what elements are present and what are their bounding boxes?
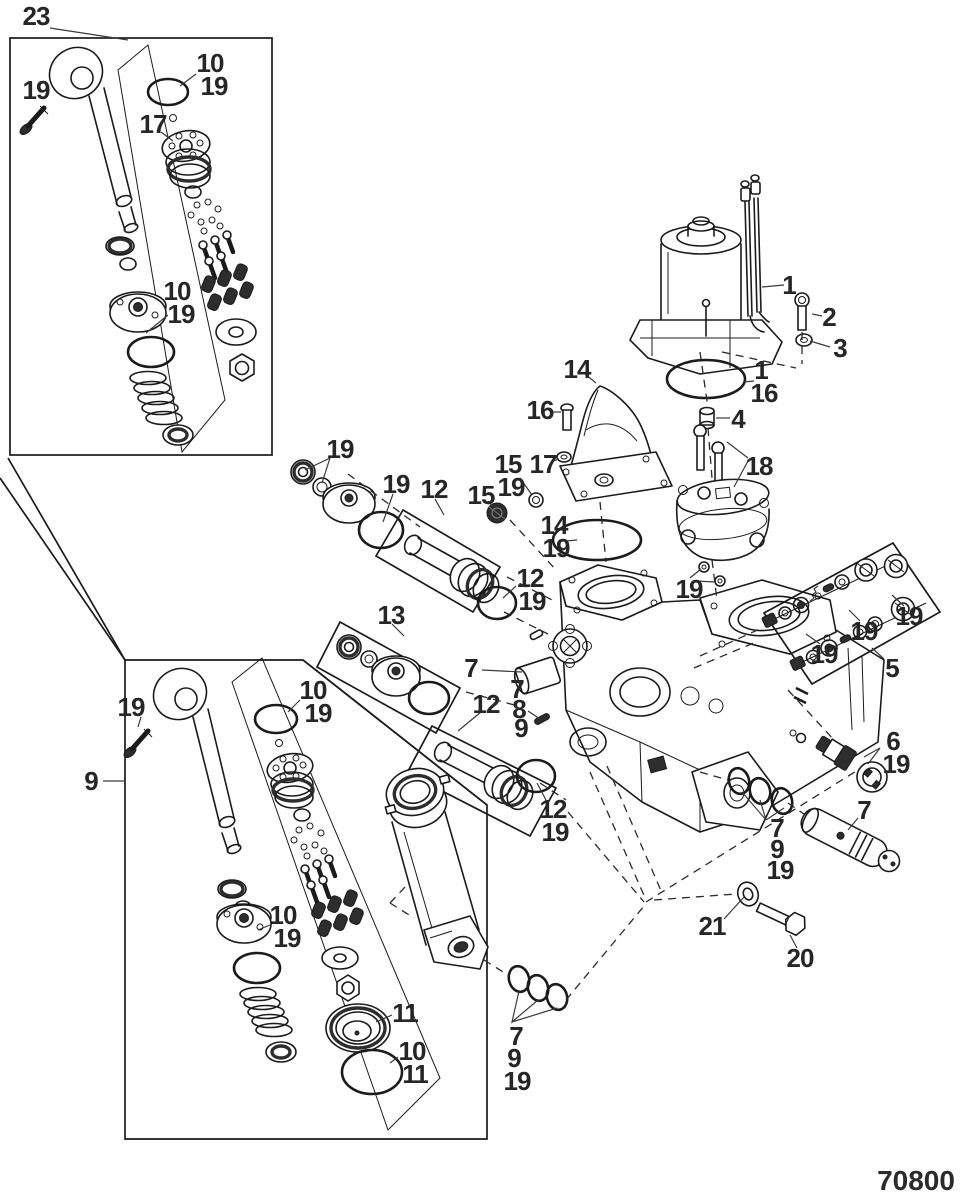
seal-15-19 <box>529 493 543 507</box>
callout-4: 4 <box>731 404 746 434</box>
callout-1: 1 <box>782 270 796 300</box>
callout-19: 19 <box>542 817 569 847</box>
construction-lines <box>0 458 487 805</box>
trim-rod-lower <box>144 658 251 913</box>
callout-3: 3 <box>833 333 847 363</box>
callout-21: 21 <box>699 911 726 941</box>
callout-19: 19 <box>201 71 228 101</box>
anchor-bolt-set <box>734 879 809 937</box>
callout-19: 19 <box>851 616 878 646</box>
callout-19: 19 <box>274 923 301 953</box>
check-balls-lower <box>291 823 327 859</box>
washer-3 <box>796 334 812 346</box>
callout-19: 19 <box>305 698 332 728</box>
screw-19-upper <box>18 106 48 137</box>
callout-19: 19 <box>676 574 703 604</box>
exploded-view-art: 2319101917101912311641617141519151419181… <box>0 0 964 1198</box>
callout-19: 19 <box>896 601 923 631</box>
callout-9: 9 <box>84 766 98 796</box>
diagram-canvas: 2319101917101912311641617141519151419181… <box>0 0 964 1198</box>
callout-12: 12 <box>421 474 448 504</box>
washer-17 <box>557 452 571 462</box>
callout-16: 16 <box>751 378 778 408</box>
callout-17: 17 <box>530 449 557 479</box>
callout-19: 19 <box>118 692 145 722</box>
manifold-body <box>512 565 884 832</box>
callout-20: 20 <box>787 943 814 973</box>
callout-19: 19 <box>168 299 195 329</box>
ram-o-ring-lower <box>517 760 555 792</box>
screw-19-lower <box>122 729 152 760</box>
callout-12: 12 <box>473 689 500 719</box>
callout-13: 13 <box>378 600 405 630</box>
oil-pump <box>675 425 770 586</box>
screw-16 <box>561 404 573 430</box>
hydraulic-tubes <box>741 175 769 332</box>
cylinder-cap-11 <box>326 1004 402 1094</box>
callout-17: 17 <box>140 109 167 139</box>
trim-rod-upper <box>40 37 139 270</box>
seal-kit-13 <box>317 622 460 733</box>
callout-23: 23 <box>23 1 50 31</box>
callout-19: 19 <box>327 434 354 464</box>
callout-19: 19 <box>383 469 410 499</box>
callout-19: 19 <box>23 75 50 105</box>
callout-19: 19 <box>543 533 570 563</box>
callout-2: 2 <box>822 302 836 332</box>
callout-7: 7 <box>857 795 871 825</box>
callout-19: 19 <box>811 639 838 669</box>
callout-5: 5 <box>885 653 899 683</box>
callout-19: 19 <box>767 855 794 885</box>
grommets-lower <box>310 889 364 938</box>
callout-16: 16 <box>527 395 554 425</box>
callout-19: 19 <box>883 749 910 779</box>
callout-15: 15 <box>468 480 495 510</box>
callout-19: 19 <box>498 472 525 502</box>
callout-14: 14 <box>564 354 592 384</box>
check-balls-upper <box>188 199 223 234</box>
callout-11: 11 <box>402 1059 428 1089</box>
callout-11: 11 <box>392 998 418 1028</box>
callout-19: 19 <box>504 1066 531 1096</box>
pump-motor <box>630 175 812 429</box>
callout-7: 7 <box>464 653 478 683</box>
callout-18: 18 <box>746 451 773 481</box>
callout-19: 19 <box>519 586 546 616</box>
screw-2 <box>795 293 809 330</box>
drawing-number: 70800 <box>877 1165 955 1196</box>
callout-9: 9 <box>514 713 528 743</box>
